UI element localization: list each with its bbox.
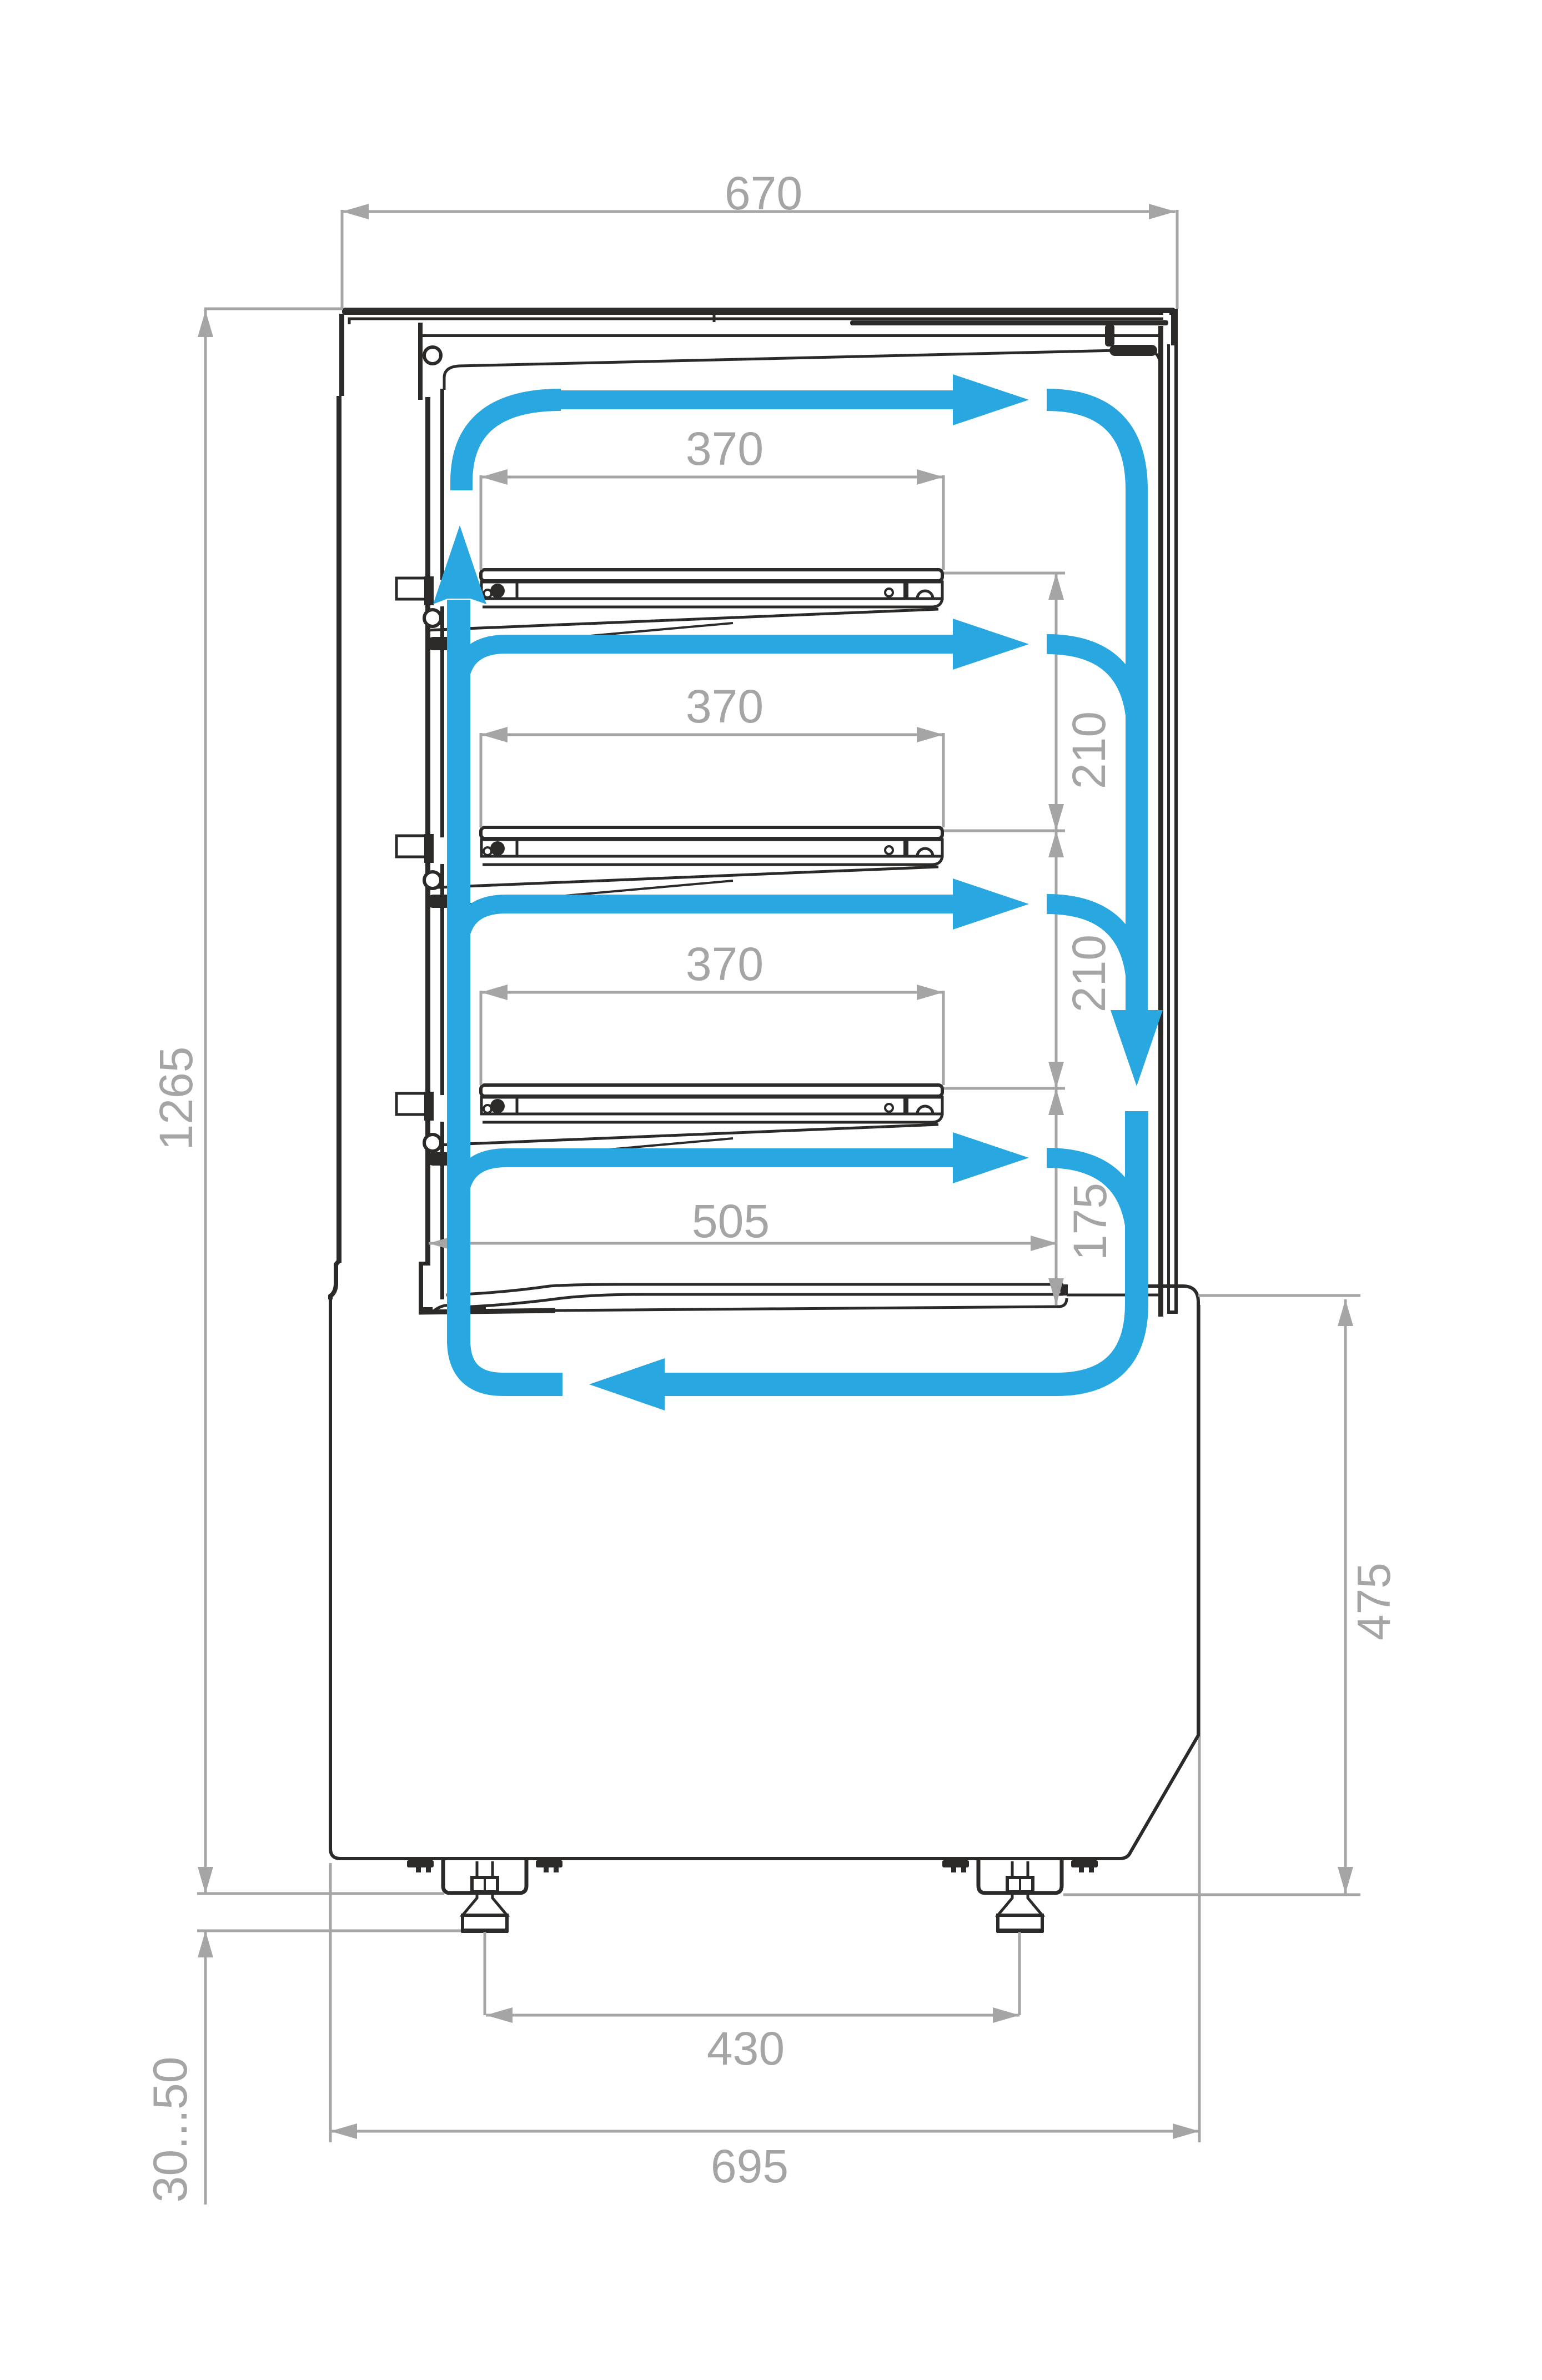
svg-text:475: 475 bbox=[1348, 1563, 1400, 1640]
svg-text:210: 210 bbox=[1063, 935, 1115, 1012]
svg-text:175: 175 bbox=[1064, 1183, 1116, 1261]
svg-text:430: 430 bbox=[707, 2022, 785, 2075]
svg-text:30...50: 30...50 bbox=[144, 2057, 197, 2203]
svg-text:1265: 1265 bbox=[150, 1047, 202, 1151]
svg-text:505: 505 bbox=[692, 1195, 770, 1247]
svg-text:370: 370 bbox=[686, 680, 764, 732]
svg-text:670: 670 bbox=[725, 167, 802, 219]
svg-text:695: 695 bbox=[711, 2140, 788, 2192]
svg-text:370: 370 bbox=[686, 423, 764, 475]
svg-text:210: 210 bbox=[1063, 711, 1115, 789]
svg-text:370: 370 bbox=[686, 938, 764, 990]
